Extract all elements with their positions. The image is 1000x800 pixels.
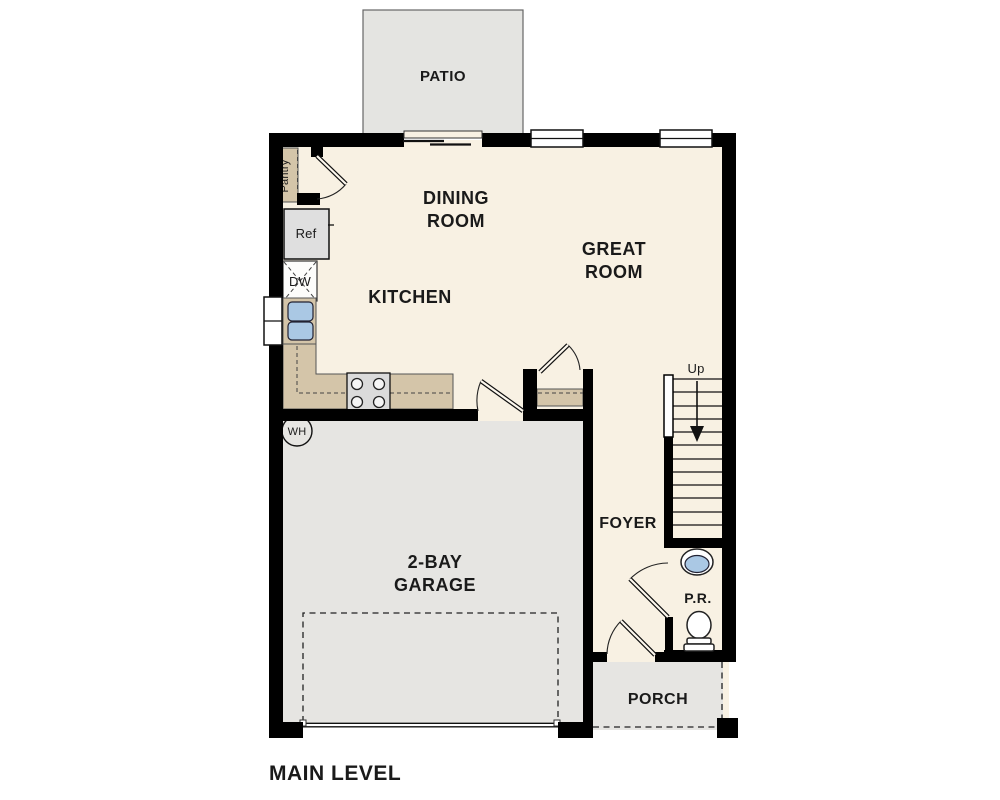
room-label-powder-room: P.R.	[684, 590, 711, 606]
sink-basin-top	[288, 302, 313, 321]
room-label-great-line2: ROOM	[585, 262, 643, 282]
room-label-kitchen: KITCHEN	[368, 287, 452, 307]
room-label-dining-line1: DINING	[423, 188, 489, 208]
burner	[374, 379, 385, 390]
floorplan-canvas: PATIO 2-BAY GARAGE PORCH Pantry Ref	[0, 0, 1000, 800]
window-icon	[531, 130, 583, 147]
window-icon	[264, 297, 282, 345]
porch-post	[717, 718, 738, 738]
room-label-garage-line2: GARAGE	[394, 575, 476, 595]
stairs-up-label: Up	[687, 361, 704, 376]
room-label-great-line1: GREAT	[582, 239, 646, 259]
burner	[352, 397, 363, 408]
floorplan-page: PATIO 2-BAY GARAGE PORCH Pantry Ref	[0, 0, 1000, 800]
sink-basin-bottom	[288, 322, 313, 340]
toilet-icon	[684, 612, 714, 652]
room-label-garage-line1: 2-BAY	[408, 552, 463, 572]
burner	[352, 379, 363, 390]
ref-label: Ref	[296, 226, 317, 241]
burner	[374, 397, 385, 408]
plan-title: MAIN LEVEL	[269, 762, 401, 785]
room-label-porch: PORCH	[628, 691, 688, 708]
wh-label: WH	[288, 426, 307, 438]
window-icon	[660, 130, 712, 147]
stair-railing	[664, 375, 673, 437]
garage-area: 2-BAY GARAGE	[283, 421, 583, 727]
porch-area: PORCH	[593, 662, 738, 738]
patio-area: PATIO	[363, 10, 523, 136]
closet-shelf	[537, 389, 583, 406]
room-label-patio: PATIO	[420, 68, 466, 85]
room-label-foyer: FOYER	[599, 515, 657, 532]
dw-label: DW	[289, 274, 312, 289]
room-label-dining-line2: ROOM	[427, 211, 485, 231]
bathroom-sink-icon	[681, 549, 713, 575]
coat-closet	[537, 389, 583, 406]
